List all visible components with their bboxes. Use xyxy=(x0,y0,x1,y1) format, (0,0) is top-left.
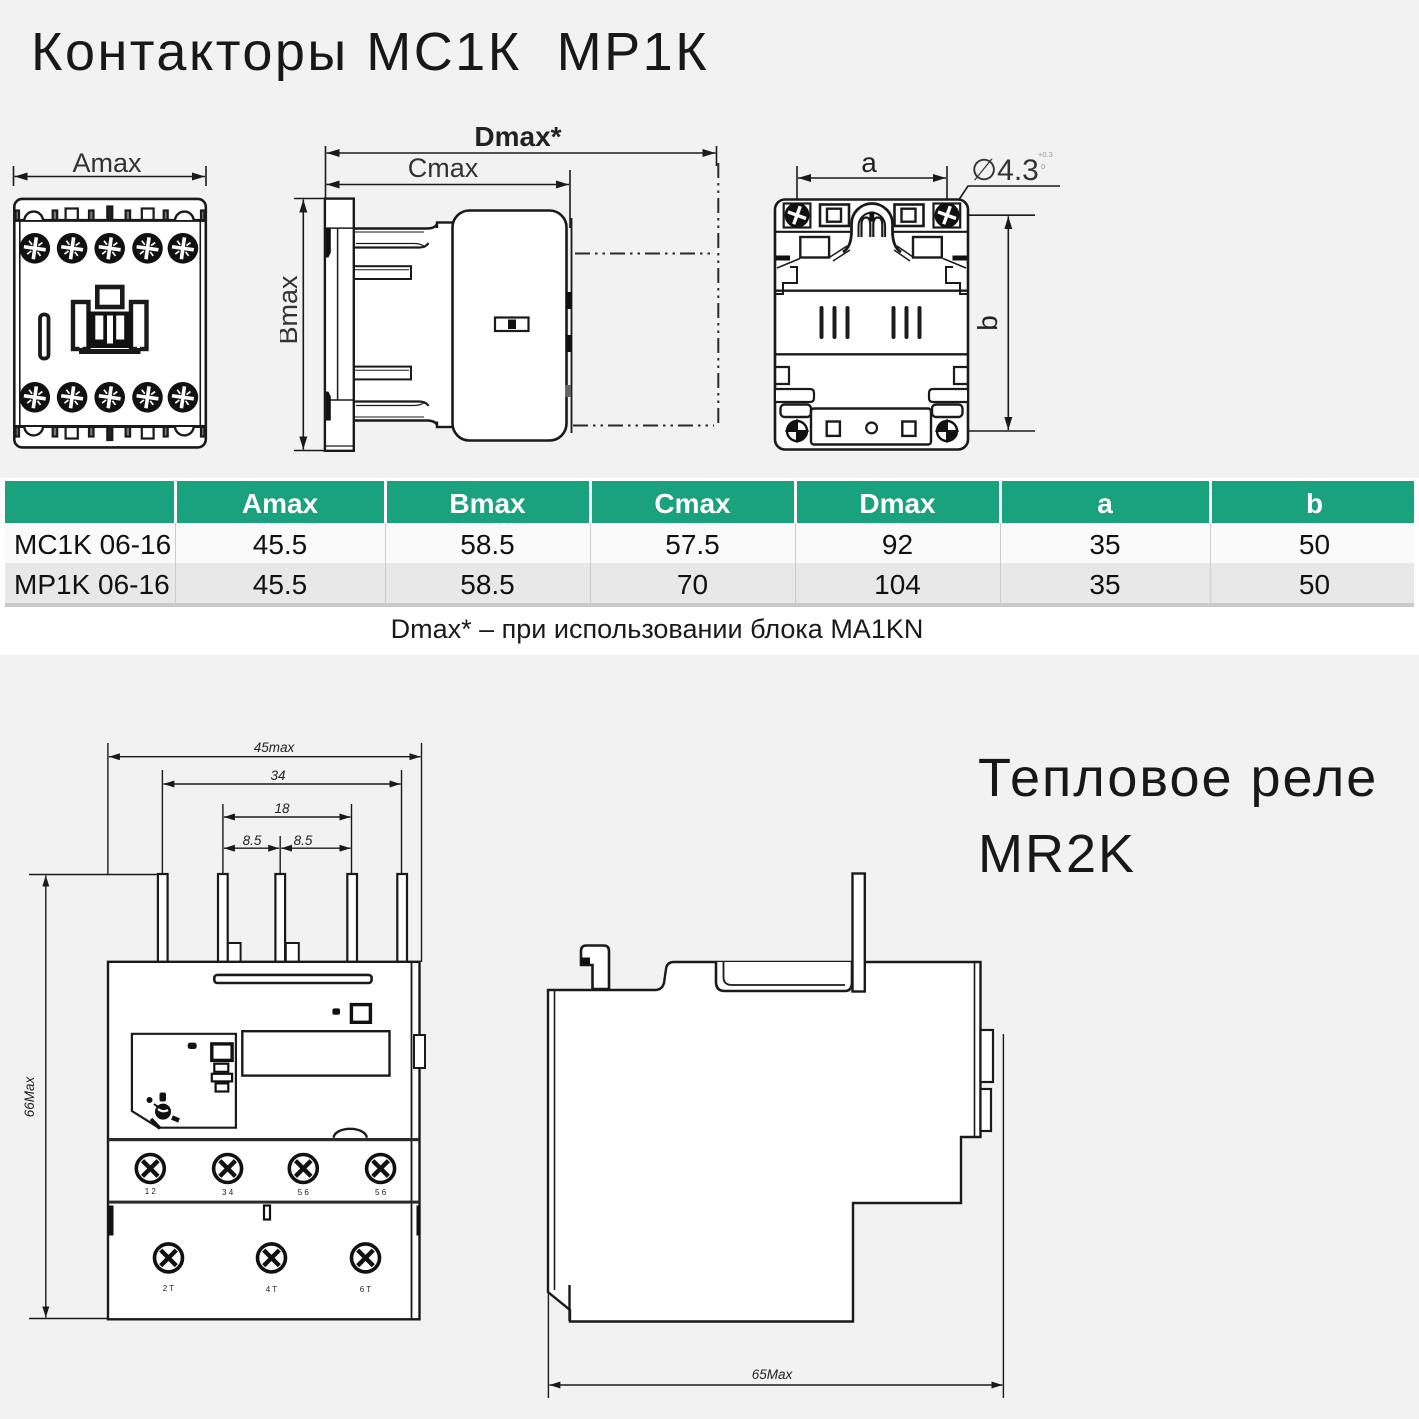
svg-text:4 T: 4 T xyxy=(266,1285,278,1294)
svg-text:8.5: 8.5 xyxy=(294,833,313,848)
svg-text:66Max: 66Max xyxy=(22,1075,37,1117)
svg-text:+0.3: +0.3 xyxy=(1038,150,1053,159)
svg-text:5 6: 5 6 xyxy=(298,1188,310,1197)
svg-text:34: 34 xyxy=(270,768,285,783)
svg-text:45max: 45max xyxy=(254,740,296,755)
svg-text:8.5: 8.5 xyxy=(243,833,262,848)
svg-text:65Max: 65Max xyxy=(752,1367,794,1382)
svg-text:5 6: 5 6 xyxy=(375,1188,387,1197)
svg-text:2 T: 2 T xyxy=(163,1284,175,1293)
svg-text:3 4: 3 4 xyxy=(222,1188,234,1197)
svg-text:a: a xyxy=(861,147,877,178)
svg-text:Amax: Amax xyxy=(72,148,142,178)
svg-text:6 T: 6 T xyxy=(360,1285,372,1294)
svg-text:b: b xyxy=(972,315,1003,331)
svg-text:Dmax*: Dmax* xyxy=(474,121,561,152)
svg-text:Cmax: Cmax xyxy=(408,153,479,183)
svg-text:0: 0 xyxy=(1041,162,1045,171)
svg-text:∅4.3: ∅4.3 xyxy=(971,154,1039,187)
svg-text:1 2: 1 2 xyxy=(145,1187,157,1196)
svg-text:18: 18 xyxy=(274,801,290,816)
svg-text:Bmax: Bmax xyxy=(280,275,303,345)
